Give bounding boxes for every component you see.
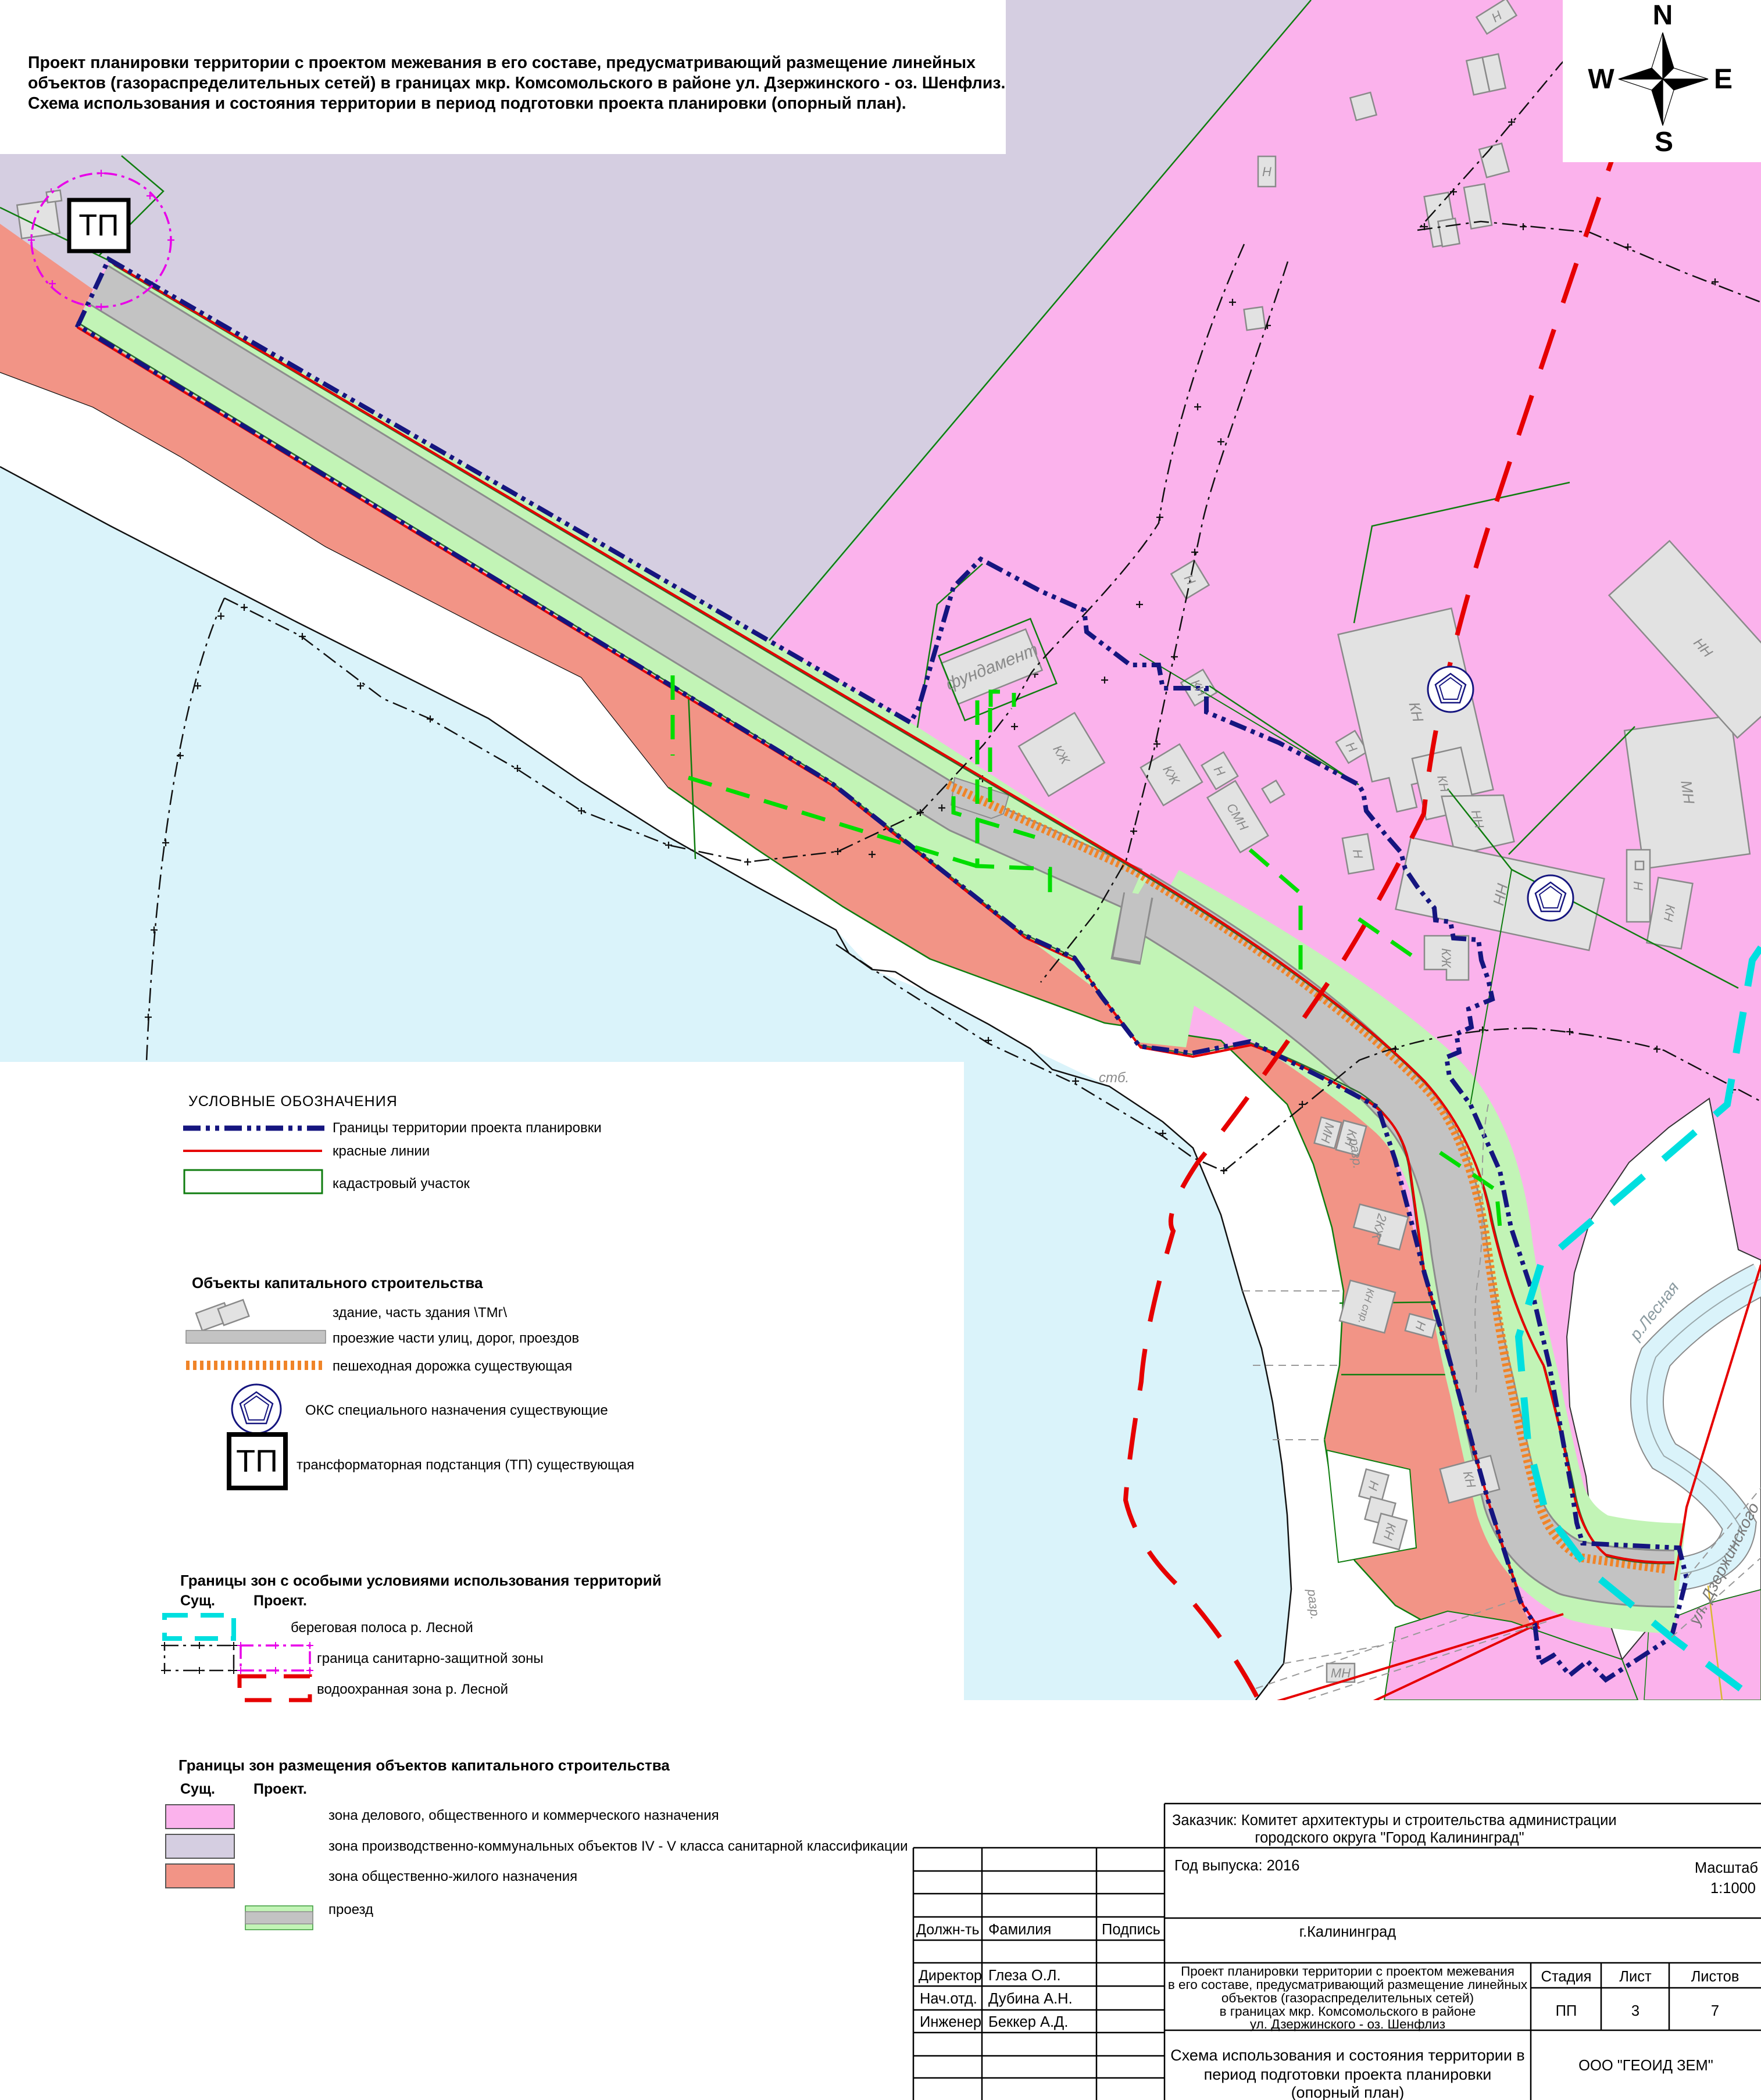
svg-text:Н: Н xyxy=(1262,164,1271,179)
svg-text:пешеходная дорожка существующа: пешеходная дорожка существующая xyxy=(333,1358,572,1374)
svg-text:Проект планировки территории с: Проект планировки территории с проектом … xyxy=(1181,1964,1514,1979)
svg-text:ТП: ТП xyxy=(78,209,119,242)
svg-text:Границы зон с особыми условиям: Границы зон с особыми условиями использо… xyxy=(180,1572,662,1589)
svg-text:ООО "ГЕОИД ЗЕМ": ООО "ГЕОИД ЗЕМ" xyxy=(1578,2058,1713,2074)
svg-text:Инженер: Инженер xyxy=(920,2014,981,2030)
svg-text:объектов (газораспределительны: объектов (газораспределительных сетей) в… xyxy=(28,74,1005,92)
svg-text:г.Калининград: г.Калининград xyxy=(1299,1924,1396,1940)
svg-text:КЖ: КЖ xyxy=(1439,948,1453,968)
svg-text:КН: КН xyxy=(1661,904,1678,923)
svg-text:Сущ.: Сущ. xyxy=(180,1593,215,1609)
svg-text:Границы зон размещения объекто: Границы зон размещения объектов капиталь… xyxy=(178,1756,670,1774)
svg-text:Схема использования и состояни: Схема использования и состояния территор… xyxy=(1170,2047,1525,2064)
svg-text:Сущ.: Сущ. xyxy=(180,1781,215,1797)
svg-text:проезд: проезд xyxy=(328,1902,373,1917)
svg-text:в его составе, предусматривающ: в его составе, предусматривающий размеще… xyxy=(1168,1977,1528,1992)
svg-text:W: W xyxy=(1588,64,1614,95)
svg-text:ПП: ПП xyxy=(1556,2003,1577,2019)
svg-text:Беккер А.Д.: Беккер А.Д. xyxy=(988,2014,1068,2030)
svg-text:ТП: ТП xyxy=(236,1444,278,1479)
svg-text:Листов: Листов xyxy=(1691,1969,1739,1985)
svg-text:красные линии: красные линии xyxy=(333,1143,430,1159)
svg-text:зона общественно-жилого назнач: зона общественно-жилого назначения xyxy=(328,1869,577,1884)
svg-text:ул. Дзержинского - оз. Шенфлиз: ул. Дзержинского - оз. Шенфлиз xyxy=(1250,2017,1445,2031)
svg-text:Должн-ть: Должн-ть xyxy=(916,1922,979,1938)
svg-text:УСЛОВНЫЕ ОБОЗНАЧЕНИЯ: УСЛОВНЫЕ ОБОЗНАЧЕНИЯ xyxy=(188,1093,398,1110)
svg-text:Схема использования и состояни: Схема использования и состояния территор… xyxy=(28,94,906,113)
svg-text:S: S xyxy=(1655,127,1673,158)
svg-text:3: 3 xyxy=(1631,2003,1639,2019)
svg-text:граница санитарно-защитной зон: граница санитарно-защитной зоны xyxy=(317,1651,544,1666)
svg-text:водоохранная зона р. Лесной: водоохранная зона р. Лесной xyxy=(317,1682,508,1697)
svg-text:Масштаб: Масштаб xyxy=(1695,1860,1758,1876)
svg-text:Лист: Лист xyxy=(1619,1969,1652,1985)
svg-text:стб.: стб. xyxy=(1099,1070,1129,1086)
svg-text:Проект планировки территории с: Проект планировки территории с проектом … xyxy=(28,53,976,72)
svg-text:Стадия: Стадия xyxy=(1541,1969,1592,1985)
svg-text:Границы территории проекта пла: Границы территории проекта планировки xyxy=(333,1120,602,1136)
svg-text:зона делового, общественного и: зона делового, общественного и коммерчес… xyxy=(328,1808,719,1823)
svg-text:Н: Н xyxy=(1631,881,1645,890)
svg-text:береговая полоса р. Лесной: береговая полоса р. Лесной xyxy=(291,1620,473,1636)
svg-text:Дубина А.Н.: Дубина А.Н. xyxy=(988,1991,1073,2007)
svg-text:Нач.отд.: Нач.отд. xyxy=(920,1991,977,2007)
svg-text:7: 7 xyxy=(1711,2003,1719,2019)
svg-text:Фамилия: Фамилия xyxy=(988,1922,1051,1938)
svg-text:проезжие части улиц, дорог, пр: проезжие части улиц, дорог, проездов xyxy=(333,1330,579,1346)
svg-text:Объекты капитального строитель: Объекты капитального строительства xyxy=(192,1274,483,1292)
svg-text:трансформаторная подстанция (Т: трансформаторная подстанция (ТП) существ… xyxy=(297,1457,634,1473)
svg-text:Директор: Директор xyxy=(919,1967,982,1984)
svg-text:Проект.: Проект. xyxy=(253,1593,307,1609)
svg-text:Заказчик: Комитет архитектуры: Заказчик: Комитет архитектуры и строител… xyxy=(1172,1812,1617,1829)
svg-text:кадастровый участок: кадастровый участок xyxy=(333,1176,470,1192)
svg-text:E: E xyxy=(1714,64,1733,95)
svg-text:(опорный план): (опорный план) xyxy=(1291,2084,1405,2100)
svg-text:объектов (газораспределительны: объектов (газораспределительных сетей) xyxy=(1221,1991,1474,2005)
svg-text:Глеза О.Л.: Глеза О.Л. xyxy=(988,1967,1061,1984)
svg-text:Год выпуска: 2016: Год выпуска: 2016 xyxy=(1174,1858,1299,1874)
svg-text:N: N xyxy=(1653,0,1673,31)
svg-text:Подпись: Подпись xyxy=(1102,1922,1160,1938)
svg-text:1:1000: 1:1000 xyxy=(1710,1880,1756,1897)
svg-text:МН: МН xyxy=(1331,1666,1351,1680)
svg-text:ОКС специального назначения су: ОКС специального назначения существующие xyxy=(305,1403,608,1418)
svg-text:Проект.: Проект. xyxy=(253,1781,307,1797)
svg-text:период подготовки проекта план: период подготовки проекта планировки xyxy=(1204,2066,1492,2083)
svg-text:здание, часть здания \ТМг\: здание, часть здания \ТМг\ xyxy=(333,1305,507,1321)
svg-text:зона производственно-коммуналь: зона производственно-коммунальных объект… xyxy=(328,1838,908,1854)
svg-text:городского округа "Город Калин: городского округа "Город Калининград" xyxy=(1255,1830,1524,1846)
svg-text:МН: МН xyxy=(1677,779,1698,805)
